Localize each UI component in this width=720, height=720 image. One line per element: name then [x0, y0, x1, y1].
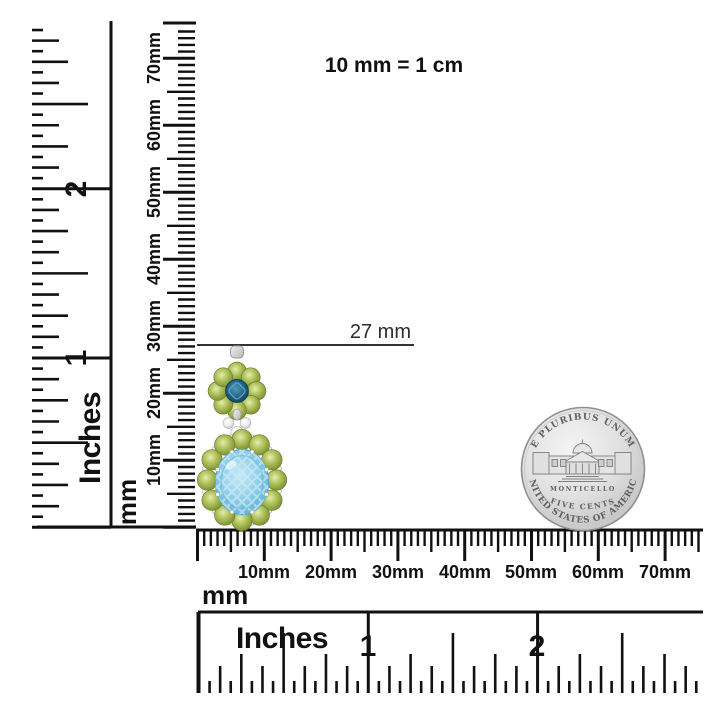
prong — [250, 510, 254, 514]
earring-bail — [233, 409, 241, 420]
ruler-label: 1 — [60, 350, 93, 367]
prong — [264, 468, 268, 472]
building-window — [607, 460, 613, 467]
ruler-label: 2 — [60, 181, 93, 198]
diamond-accent — [223, 418, 234, 429]
ruler-label: 40mm — [439, 562, 491, 582]
prong — [216, 492, 220, 496]
ruler-label: 1 — [360, 630, 377, 663]
ruler-label: 2 — [529, 630, 546, 663]
building-pavilion — [615, 453, 631, 475]
ruler-unit-label: mm — [112, 479, 142, 525]
scene: 10mm 20mm 30mm 40mm 50mm 60mm 70mm mm 1 … — [0, 0, 720, 720]
ruler-label: 60mm — [572, 562, 624, 582]
building-window — [599, 460, 605, 467]
ruler-label: 10mm — [144, 434, 164, 486]
ruler-label: 40mm — [144, 233, 164, 285]
vertical-mm-ruler-labels: 10mm 20mm 30mm 40mm 50mm 60mm 70mm mm — [112, 32, 164, 525]
length-annotation-label: 27 mm — [350, 321, 411, 343]
diamond-accent — [240, 418, 251, 429]
peridot-stone — [266, 470, 286, 490]
prong — [230, 450, 234, 454]
vertical-inch-ruler-labels: 1 2 Inches — [60, 181, 107, 484]
earring — [142, 346, 342, 532]
ruler-label: 70mm — [144, 32, 164, 84]
ruler-edges — [37, 21, 703, 693]
ruler-label: 70mm — [639, 562, 691, 582]
ruler-label: 10mm — [238, 562, 290, 582]
ruler-label: 30mm — [372, 562, 424, 582]
ruler-label: 60mm — [144, 99, 164, 151]
length-annotation: 27 mm — [197, 321, 414, 345]
ruler-unit-label: mm — [202, 580, 248, 610]
ruler-unit-label: Inches — [74, 392, 107, 484]
prong — [230, 510, 234, 514]
ruler-label: 50mm — [144, 166, 164, 218]
prong — [250, 450, 254, 454]
prong — [216, 468, 220, 472]
ruler-label: 30mm — [144, 300, 164, 352]
ruler-unit-label: Inches — [236, 622, 328, 655]
horizontal-mm-ruler-labels: 10mm 20mm 30mm 40mm 50mm 60mm 70mm mm — [202, 562, 691, 610]
jewelry-measurement-image: 10mm 20mm 30mm 40mm 50mm 60mm 70mm mm 1 … — [0, 0, 720, 720]
vertical-mm-ruler-ticks — [163, 32, 195, 528]
ruler-label: 20mm — [144, 367, 164, 419]
earring-post — [231, 346, 244, 358]
conversion-note: 10 mm = 1 cm — [325, 54, 463, 77]
ruler-label: 20mm — [305, 562, 357, 582]
ruler-label: 50mm — [505, 562, 557, 582]
coin-building-name-text: MONTICELLO — [550, 486, 616, 493]
building-window — [561, 460, 567, 467]
peridot-stone — [197, 470, 217, 490]
building-window — [552, 460, 558, 467]
building-pavilion — [533, 453, 549, 475]
horizontal-mm-ruler-ticks — [198, 530, 699, 561]
prong — [264, 492, 268, 496]
